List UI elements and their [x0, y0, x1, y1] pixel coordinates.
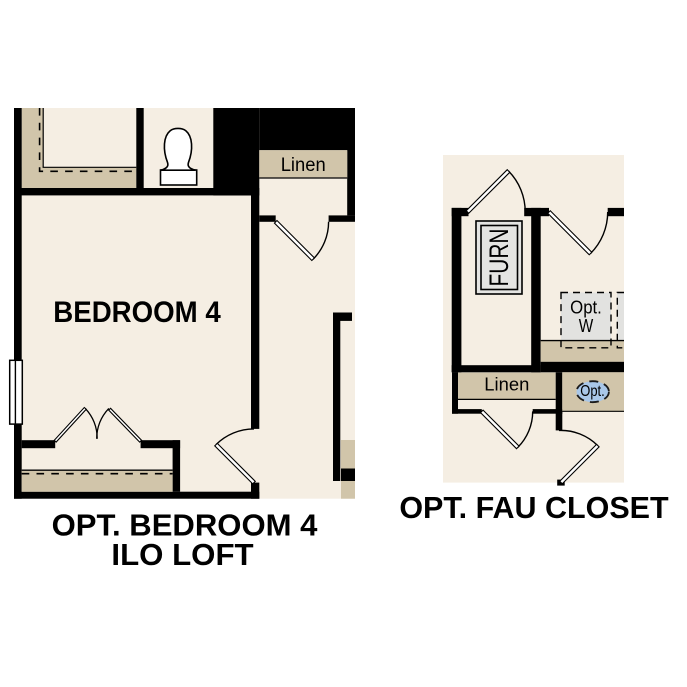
- svg-text:W: W: [579, 316, 594, 336]
- svg-text:FURN: FURN: [484, 229, 514, 287]
- svg-text:ILO LOFT: ILO LOFT: [111, 537, 253, 572]
- svg-text:Opt.: Opt.: [580, 383, 605, 400]
- svg-text:Linen: Linen: [281, 154, 326, 176]
- svg-text:Opt.: Opt.: [570, 298, 602, 318]
- svg-text:OPT. FAU CLOSET: OPT. FAU CLOSET: [399, 490, 668, 525]
- svg-text:Linen: Linen: [484, 374, 529, 394]
- svg-text:BEDROOM 4: BEDROOM 4: [53, 296, 221, 329]
